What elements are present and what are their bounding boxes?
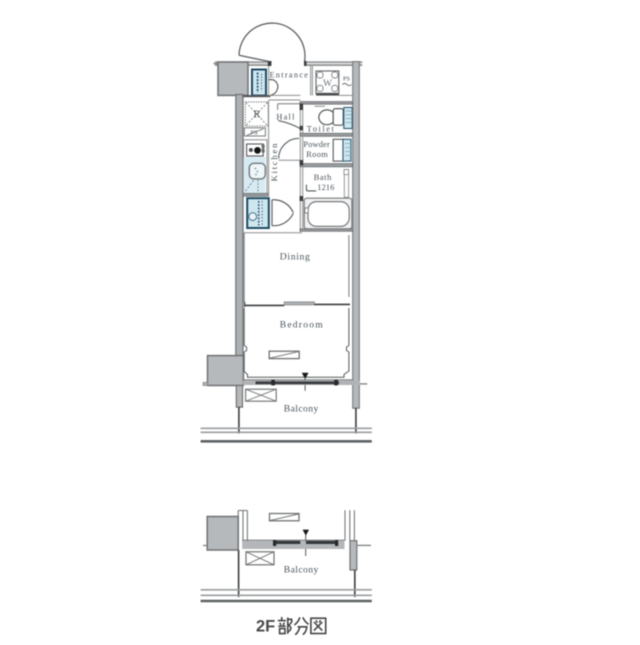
svg-text:1216: 1216 — [317, 183, 334, 192]
svg-text:W: W — [323, 79, 332, 89]
svg-text:2F: 2F — [256, 617, 275, 635]
svg-text:R: R — [254, 109, 261, 120]
svg-text:Bath: Bath — [314, 173, 332, 182]
svg-text:Entrance: Entrance — [269, 71, 308, 80]
svg-text:Room: Room — [306, 150, 328, 159]
svg-text:Kitchen: Kitchen — [269, 143, 279, 182]
svg-text:PS: PS — [343, 76, 350, 83]
svg-text:Dining: Dining — [280, 252, 310, 263]
svg-text:Balcony: Balcony — [284, 565, 319, 576]
svg-text:Balcony: Balcony — [284, 403, 319, 414]
svg-text:Powder: Powder — [303, 140, 330, 149]
